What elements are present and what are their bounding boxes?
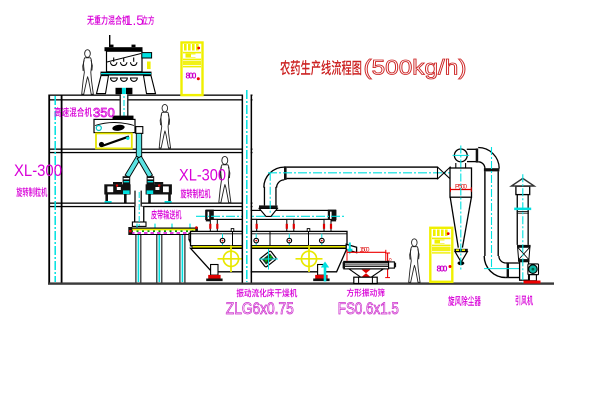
svg-text:FS0.6x1.5: FS0.6x1.5: [338, 300, 399, 318]
svg-text:350: 350: [93, 105, 115, 120]
svg-text:ZLG6x0.75: ZLG6x0.75: [226, 300, 294, 318]
svg-text:XL-300: XL-300: [14, 162, 62, 180]
svg-text:1500: 1500: [360, 247, 371, 253]
svg-text:(500kg/h): (500kg/h): [364, 56, 467, 80]
svg-text:800: 800: [186, 71, 197, 81]
svg-text:XL-300: XL-300: [179, 167, 226, 185]
svg-text:800: 800: [437, 264, 448, 274]
